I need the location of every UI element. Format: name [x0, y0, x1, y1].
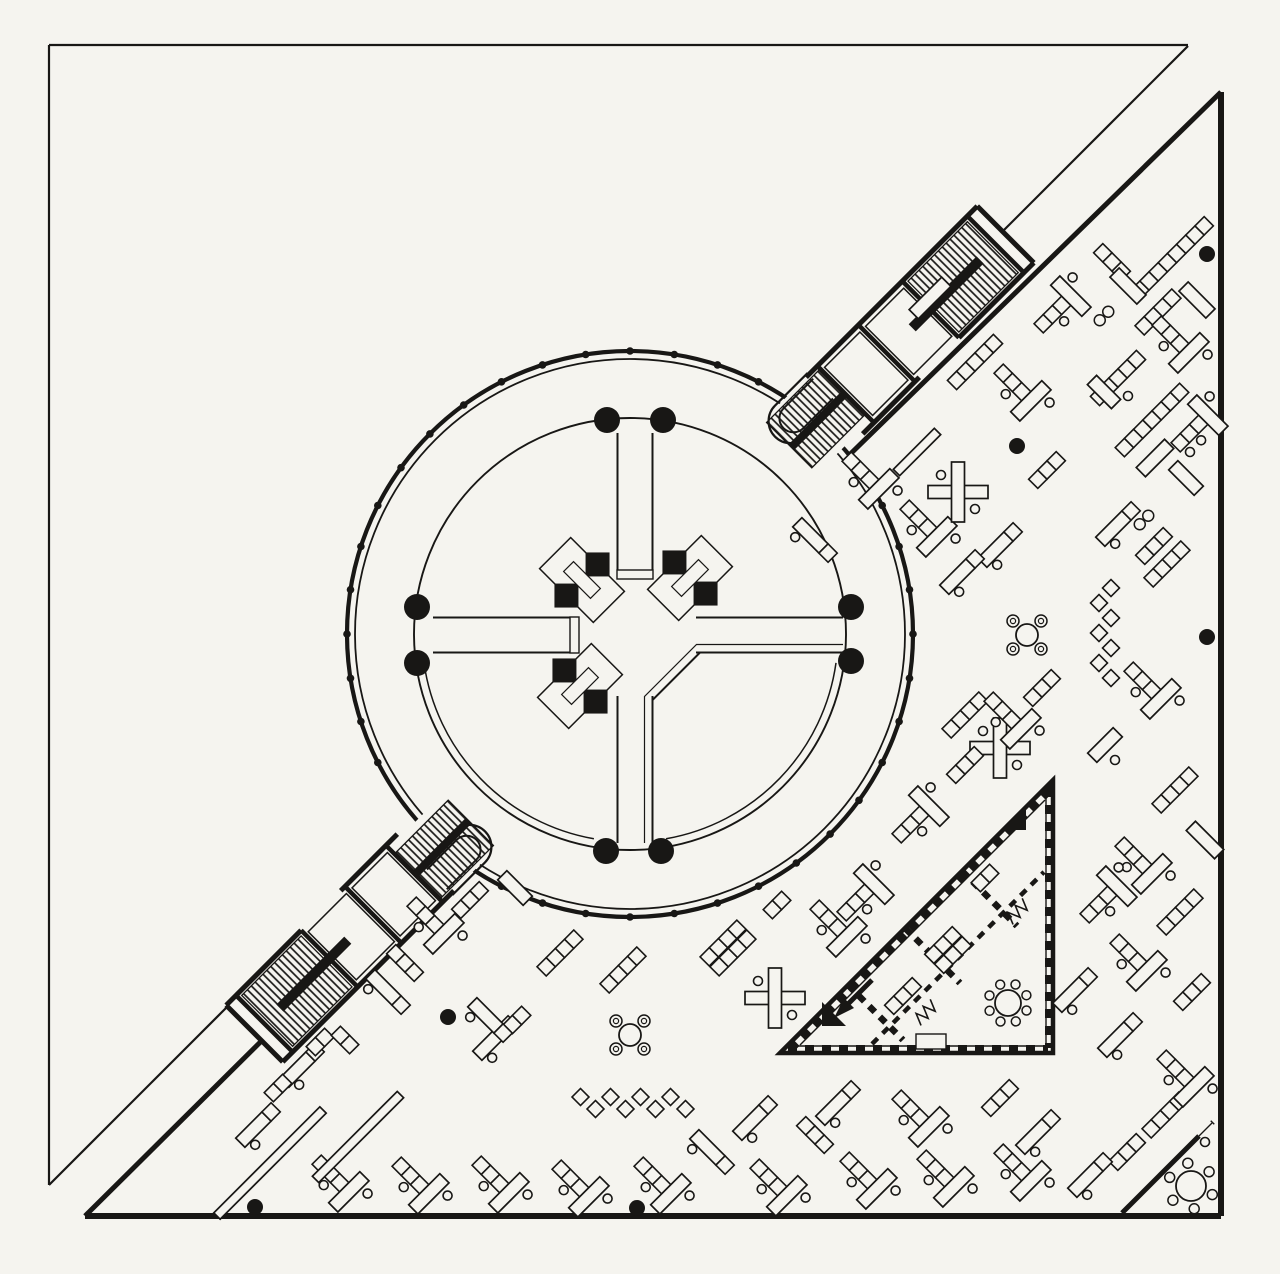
furniture-table4	[610, 1015, 650, 1055]
furniture-chain	[600, 947, 646, 993]
furniture-bar	[893, 428, 940, 475]
furniture-rect	[1169, 461, 1204, 496]
furniture-desk2	[683, 1130, 735, 1182]
furniture-dblchain	[700, 920, 756, 976]
plan-svg	[0, 0, 1280, 1274]
furniture-dot	[1199, 629, 1215, 645]
furniture-desk1	[1113, 651, 1190, 728]
furniture-chain	[331, 1026, 359, 1054]
furniture-zigzag	[1091, 580, 1120, 687]
furniture-desk2	[733, 1096, 785, 1148]
furniture-dot	[247, 1199, 263, 1215]
furniture-dot	[440, 1009, 456, 1025]
furniture-table6	[1165, 1158, 1218, 1214]
furniture-desk1	[1023, 267, 1100, 344]
furniture-desk2	[1098, 1013, 1150, 1065]
furniture-rect	[1179, 282, 1215, 318]
furniture-chair	[1186, 448, 1195, 457]
furniture-chair	[1111, 756, 1120, 765]
furniture-desk2	[1053, 968, 1105, 1020]
furniture-desk1	[881, 1079, 958, 1156]
furniture-chain	[982, 1080, 1019, 1117]
furniture-dot	[629, 1200, 645, 1216]
furniture-desk1	[1146, 1039, 1223, 1116]
furniture-chain	[1029, 452, 1066, 489]
furniture-chain	[947, 747, 984, 784]
furniture-desk1	[1099, 923, 1176, 1000]
furniture-desk1	[461, 1145, 538, 1222]
furniture-chain	[1157, 889, 1203, 935]
furniture-chain	[264, 1074, 292, 1102]
furniture-rect	[1136, 439, 1173, 476]
furniture-plus	[928, 462, 988, 522]
furniture-desk2	[940, 550, 992, 602]
furniture-desk1	[881, 777, 958, 854]
furniture-desk1	[829, 1141, 906, 1218]
furniture-bar	[214, 1107, 326, 1219]
furniture-chain	[1174, 974, 1211, 1011]
furniture-chain	[947, 334, 1002, 389]
furniture-dot	[1199, 246, 1215, 262]
furniture-desk2	[1016, 1110, 1068, 1162]
floor-plan-drawing	[0, 0, 1280, 1274]
furniture-desk1	[1069, 857, 1146, 934]
furniture-chain	[387, 945, 424, 982]
furniture-desk1	[906, 1139, 983, 1216]
furniture-dot	[1009, 438, 1025, 454]
furniture-desk2	[1068, 1153, 1120, 1205]
furniture-chain	[763, 891, 791, 919]
furniture-chain	[1152, 767, 1198, 813]
furniture-desk1	[381, 1146, 458, 1223]
furniture-bar	[312, 1091, 403, 1182]
furniture-ring8	[1092, 304, 1116, 328]
furniture-chair	[1201, 1138, 1210, 1147]
furniture-desk1	[983, 353, 1060, 430]
furniture-chain	[1024, 670, 1061, 707]
furniture-table4	[1007, 615, 1047, 655]
furniture-zigzag	[572, 1089, 694, 1118]
furniture-chain	[1109, 1134, 1146, 1171]
furniture-desk2	[359, 970, 411, 1022]
furniture-chair	[1124, 392, 1133, 401]
furniture-desk2	[816, 1081, 868, 1133]
furniture-plus	[745, 968, 805, 1028]
furniture-desk2	[978, 523, 1030, 575]
furniture-chain	[537, 930, 583, 976]
